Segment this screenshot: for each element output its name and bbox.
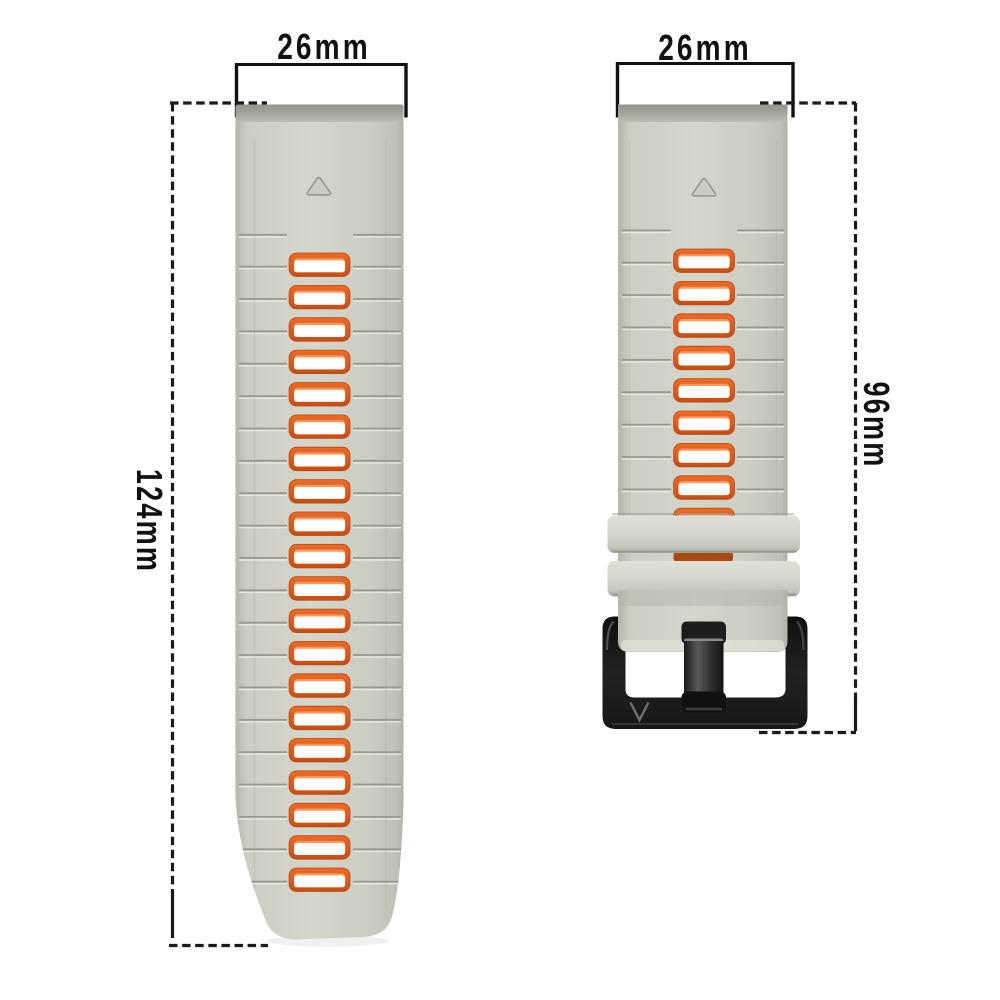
svg-text:26mm: 26mm [658,28,752,68]
svg-text:26mm: 26mm [277,27,371,67]
svg-text:124mm: 124mm [129,469,170,573]
svg-text:96mm: 96mm [856,381,897,468]
